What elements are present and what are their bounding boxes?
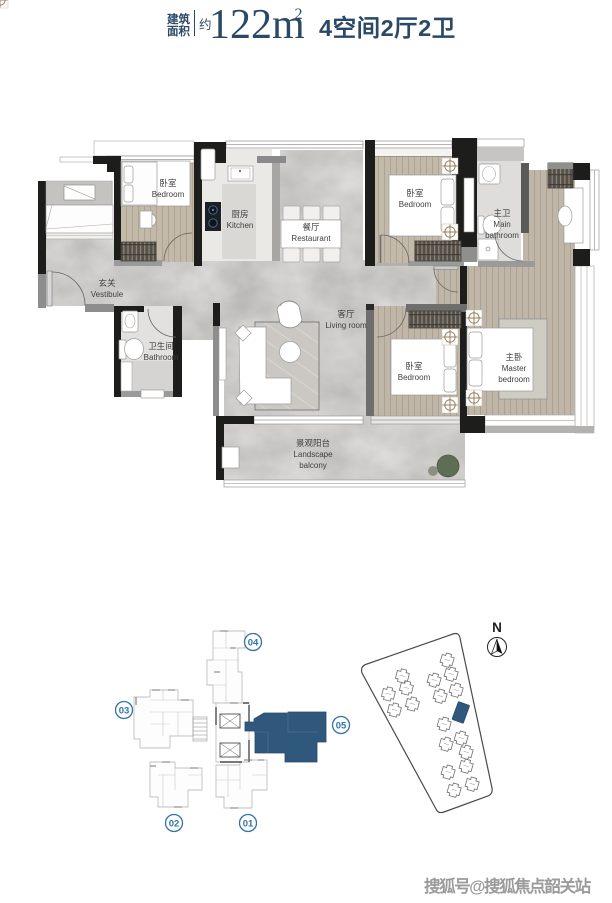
svg-text:建筑: 建筑 (167, 12, 190, 26)
svg-text:卧室: 卧室 (405, 361, 423, 371)
svg-text:02: 02 (169, 819, 180, 830)
svg-text:04: 04 (248, 638, 259, 649)
svg-text:主卫: 主卫 (493, 208, 511, 218)
svg-text:Restaurant: Restaurant (291, 234, 331, 243)
svg-text:Kitchen: Kitchen (227, 221, 254, 230)
svg-text:Vestibule: Vestibule (91, 290, 124, 299)
svg-text:玄关: 玄关 (98, 278, 116, 288)
svg-text:bedroom: bedroom (498, 375, 530, 384)
svg-text:Landscape: Landscape (293, 450, 333, 459)
svg-text:卫生间: 卫生间 (148, 341, 174, 351)
svg-text:03: 03 (119, 706, 130, 717)
svg-text:balcony: balcony (299, 461, 327, 470)
svg-text:Main: Main (493, 220, 510, 229)
svg-text:01: 01 (243, 819, 254, 830)
svg-text:Bedroom: Bedroom (152, 190, 185, 199)
svg-text:搜狐号@搜狐焦点韶关站: 搜狐号@搜狐焦点韶关站 (424, 876, 592, 896)
svg-text:4空间2厅2卫: 4空间2厅2卫 (319, 14, 456, 41)
svg-text:122m: 122m (209, 2, 305, 48)
svg-text:餐厅: 餐厅 (302, 222, 320, 232)
svg-text:05: 05 (336, 721, 347, 732)
svg-text:Living room: Living room (325, 321, 367, 330)
svg-text:N: N (492, 620, 502, 635)
svg-text:Bedroom: Bedroom (399, 200, 432, 209)
svg-text:面积: 面积 (167, 24, 190, 38)
svg-text:bathroom: bathroom (485, 231, 519, 240)
svg-text:景观阳台: 景观阳台 (296, 438, 330, 448)
svg-text:卧室: 卧室 (406, 188, 424, 198)
svg-text:厨房: 厨房 (231, 209, 248, 219)
svg-text:Master: Master (502, 364, 527, 373)
svg-text:2: 2 (295, 6, 303, 23)
svg-text:客厅: 客厅 (337, 309, 355, 319)
svg-text:Bathroom: Bathroom (144, 353, 179, 362)
svg-text:主卧: 主卧 (505, 352, 523, 362)
svg-text:Bedroom: Bedroom (398, 373, 431, 382)
svg-text:卧室: 卧室 (159, 178, 177, 188)
